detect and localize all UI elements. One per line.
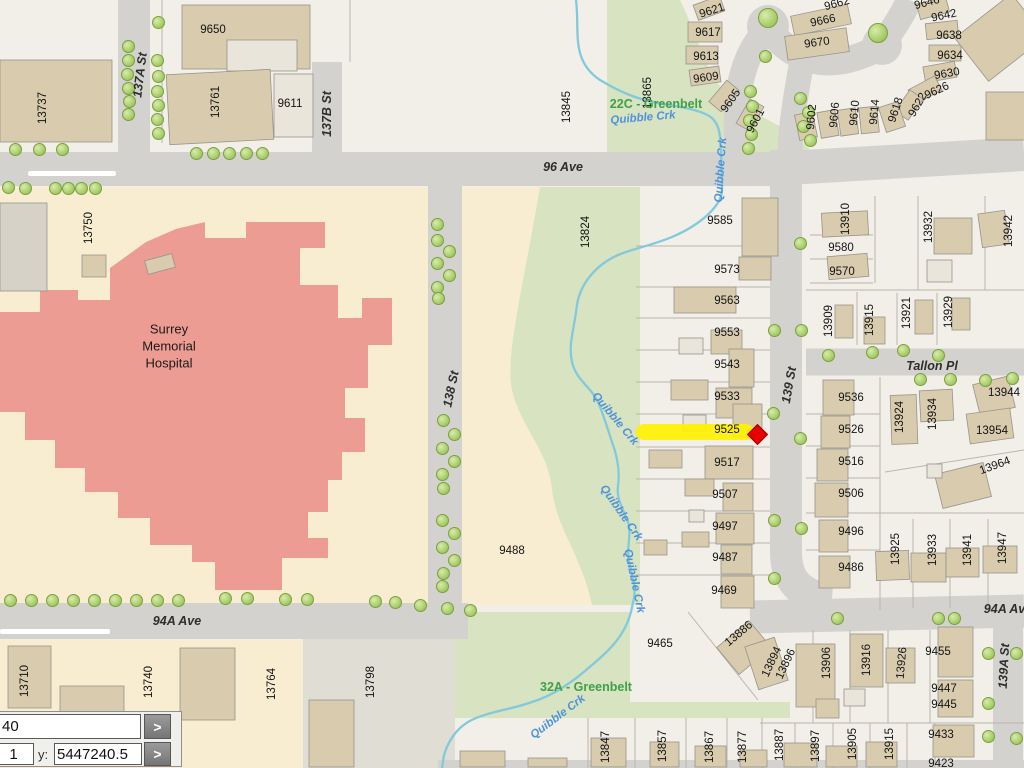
building-footprint [686,46,718,64]
building-footprint [915,300,933,334]
building-footprint [925,20,958,39]
building-footprint [911,553,946,582]
basemap-graphics [0,0,1024,768]
building-footprint [978,210,1009,247]
building-footprint [952,298,970,330]
coordinate-panel: > y: > [0,711,182,767]
building-footprint [745,637,788,689]
building-footprint [685,479,714,496]
building-footprint [682,532,709,547]
building-footprint [683,415,706,431]
x-coordinate-input[interactable] [0,714,141,739]
secondary-coordinate-input[interactable] [0,743,34,765]
building-footprint [938,627,973,677]
building-footprint [955,0,1024,81]
building-footprint [864,317,885,344]
building-footprint [986,92,1024,140]
building-footprint [983,546,1017,573]
building-footprint [886,648,915,683]
building-footprint [821,416,850,448]
go-button-x[interactable]: > [144,714,171,739]
building-footprint [689,510,704,522]
building-footprint [740,750,767,767]
building-footprint [528,758,567,767]
building-footprint [0,203,47,291]
building-footprint [826,746,857,767]
building-footprint [166,69,274,144]
building-footprint [674,287,736,313]
building-footprint [82,255,106,277]
building-footprint [0,60,112,142]
building-footprint [729,349,754,387]
building-footprint [890,395,918,445]
building-footprint [274,74,313,137]
building-footprint [876,550,910,580]
building-footprint [721,545,752,574]
y-coordinate-input[interactable] [54,743,142,765]
building-footprint [723,483,753,511]
building-footprint [927,260,952,282]
building-footprint [671,380,708,400]
building-footprint [721,576,754,608]
building-footprint [227,40,297,71]
building-footprint [919,389,954,422]
building-footprint [850,634,883,687]
building-footprint [650,742,679,767]
building-footprint [784,743,817,767]
building-footprint [844,689,865,706]
building-footprint [739,257,771,280]
building-footprint [966,408,1014,444]
building-footprint [827,253,869,279]
building-footprint [817,110,839,139]
building-footprint [8,646,51,708]
building-footprint [815,483,848,517]
building-footprint [866,742,897,767]
building-footprint [819,556,850,588]
building-footprint [819,520,848,552]
building-footprint [644,540,667,555]
building-footprint [693,0,725,20]
building-footprint [733,404,762,437]
building-footprint [705,446,753,479]
building-footprint [816,699,839,718]
building-footprint [835,305,853,338]
building-footprint [929,45,961,61]
building-footprint [591,738,626,767]
building-footprint [309,700,354,767]
building-footprint [817,449,848,481]
building-footprint [946,548,979,577]
building-footprint [679,338,703,354]
building-footprint [935,462,992,508]
building-footprint [934,218,972,254]
go-button-y[interactable]: > [144,742,171,766]
building-footprint [796,644,835,707]
building-footprint [821,211,868,237]
building-footprint [688,22,722,42]
building-footprint [180,648,235,720]
building-footprint [859,106,880,134]
building-footprint [938,680,973,717]
map-canvas[interactable]: Surrey Memorial Hospital 137379650137619… [0,0,1024,768]
building-footprint [460,751,505,767]
building-footprint [837,108,858,136]
building-footprint [649,450,682,468]
building-footprint [716,513,754,544]
building-footprint [916,0,949,20]
building-footprint [823,380,854,415]
y-coordinate-label: y: [38,747,48,762]
building-footprint [927,464,942,478]
building-footprint [933,725,974,757]
building-footprint [695,746,726,767]
building-footprint [742,198,778,256]
